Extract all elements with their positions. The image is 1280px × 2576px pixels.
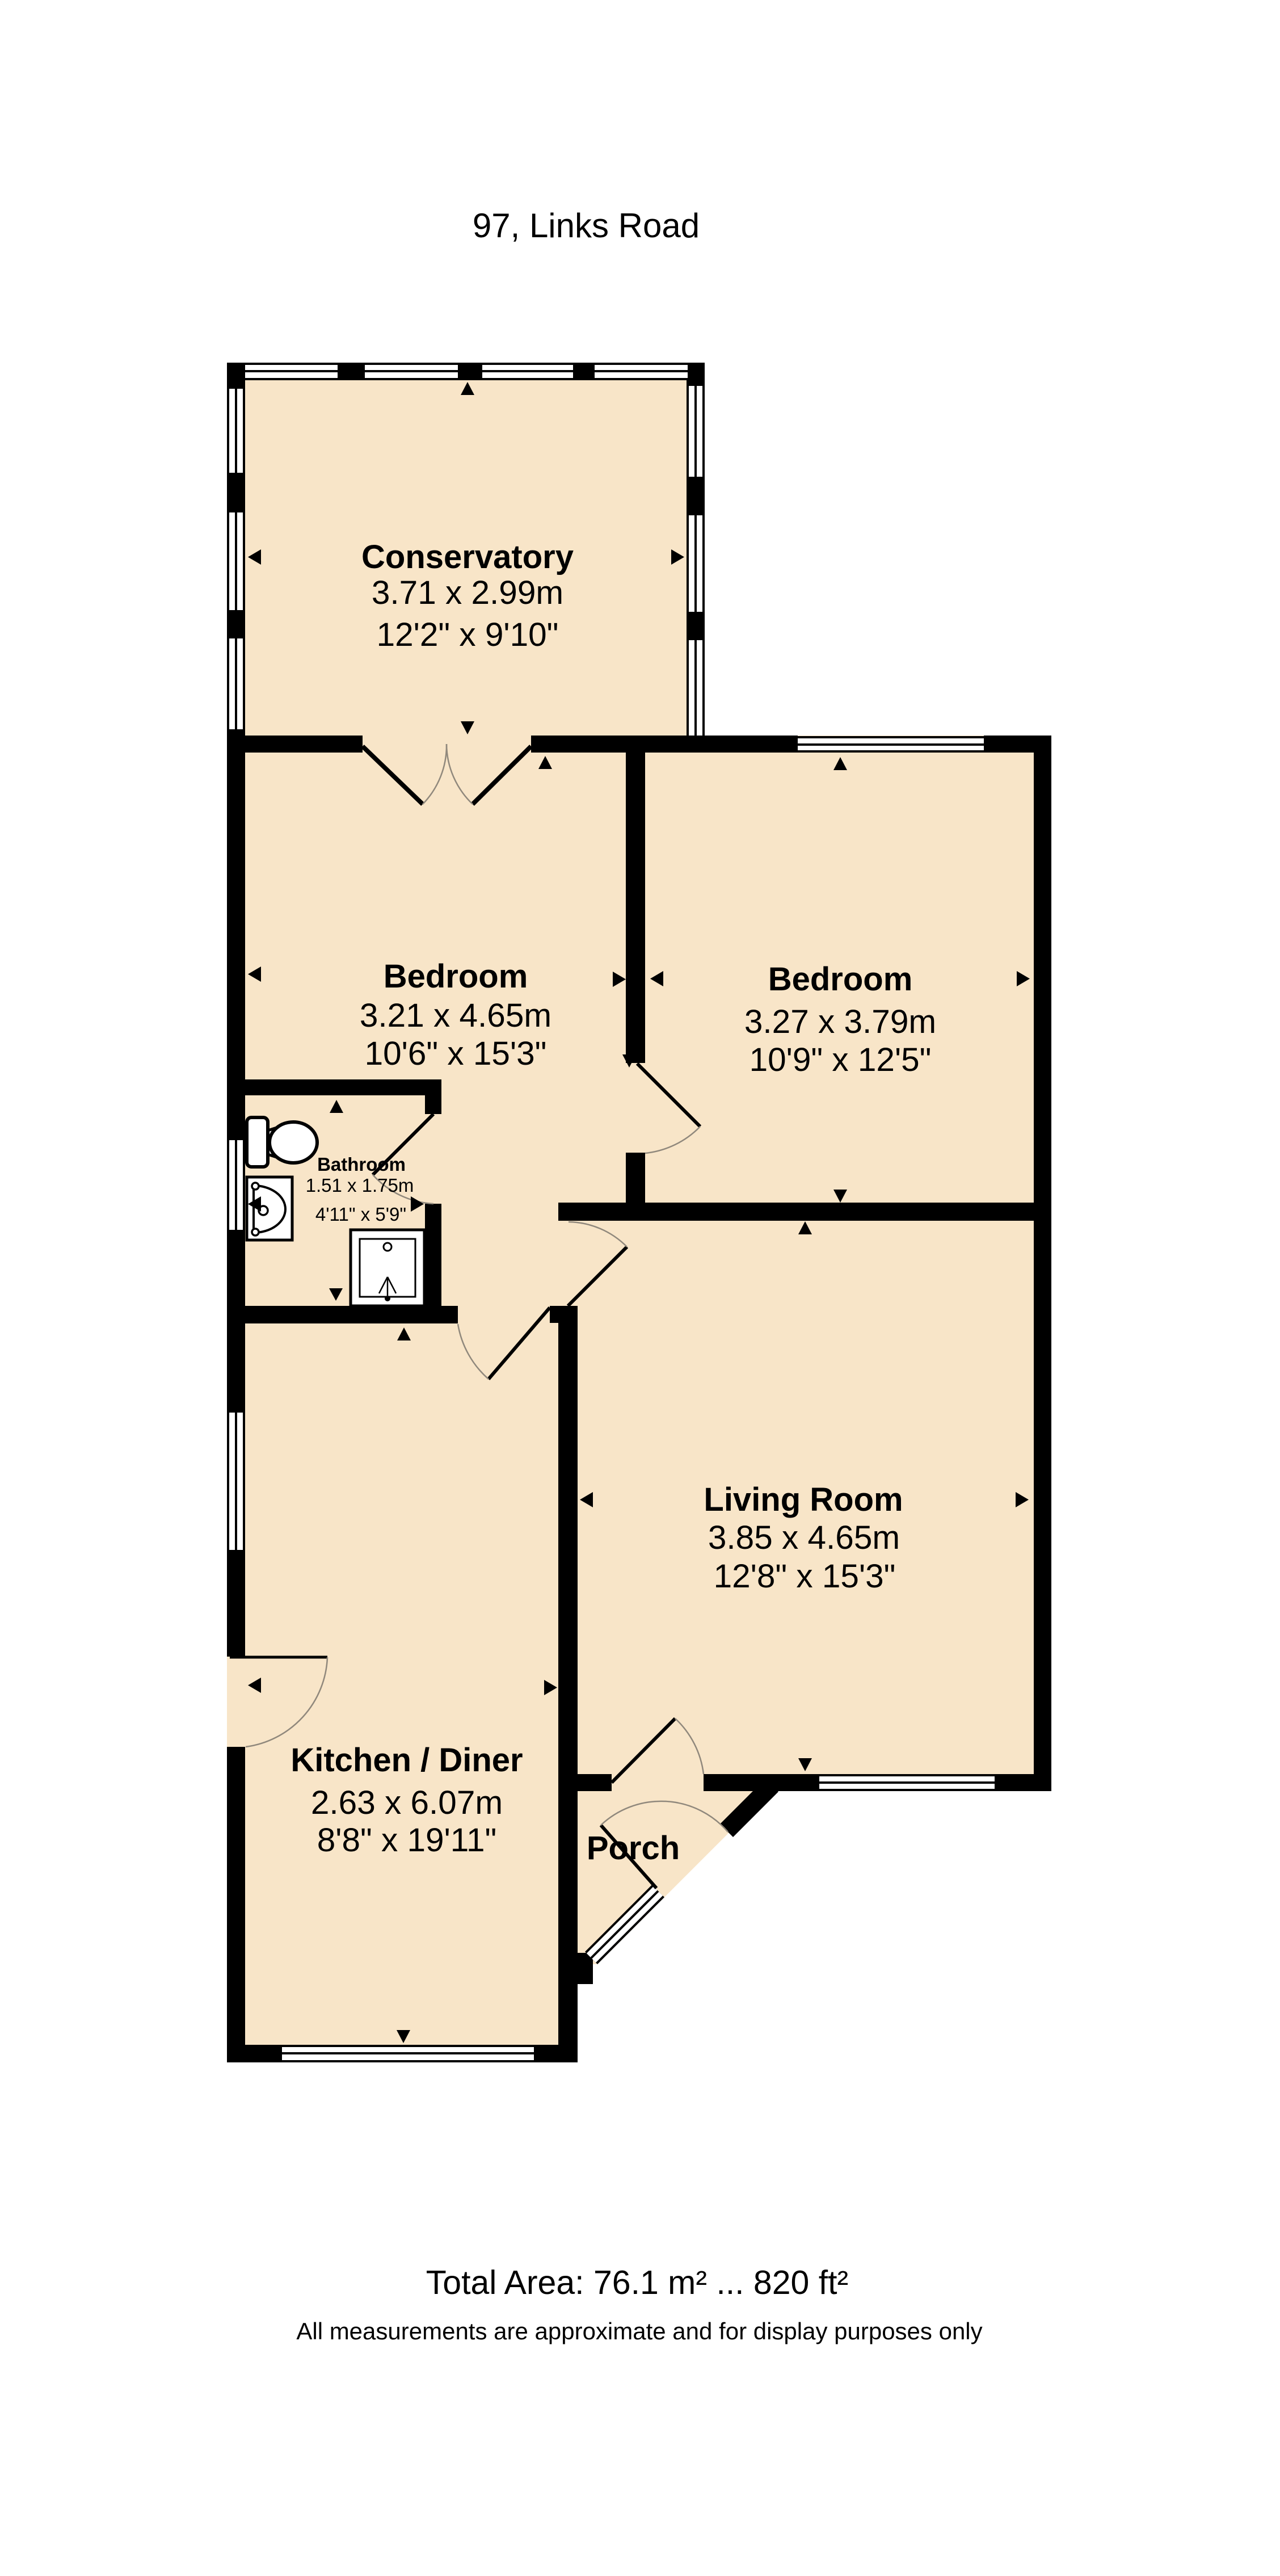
svg-text:3.85 x 4.65m: 3.85 x 4.65m	[708, 1519, 900, 1556]
svg-text:Total Area: 76.1 m² ... 820 ft: Total Area: 76.1 m² ... 820 ft²	[426, 2264, 848, 2301]
svg-text:Kitchen / Diner: Kitchen / Diner	[290, 1742, 523, 1779]
svg-text:Living Room: Living Room	[704, 1481, 903, 1518]
svg-text:10'9" x 12'5": 10'9" x 12'5"	[750, 1041, 932, 1078]
svg-text:10'6" x 15'3": 10'6" x 15'3"	[365, 1035, 547, 1072]
svg-text:3.27 x 3.79m: 3.27 x 3.79m	[744, 1003, 936, 1040]
svg-text:3.71 x 2.99m: 3.71 x 2.99m	[372, 574, 563, 611]
svg-text:All measurements are approxima: All measurements are approximate and for…	[296, 2318, 982, 2344]
svg-text:12'8" x 15'3": 12'8" x 15'3"	[714, 1558, 896, 1595]
svg-text:12'2" x 9'10": 12'2" x 9'10"	[377, 616, 559, 653]
svg-text:2.63 x 6.07m: 2.63 x 6.07m	[311, 1784, 503, 1821]
svg-text:Bedroom: Bedroom	[768, 961, 913, 998]
svg-text:Bedroom: Bedroom	[384, 958, 528, 995]
svg-text:Conservatory: Conservatory	[361, 539, 574, 575]
svg-text:4'11" x 5'9": 4'11" x 5'9"	[315, 1204, 406, 1225]
svg-text:Porch: Porch	[587, 1830, 680, 1867]
svg-text:1.51 x 1.75m: 1.51 x 1.75m	[306, 1175, 414, 1196]
svg-text:3.21 x 4.65m: 3.21 x 4.65m	[360, 997, 551, 1034]
svg-text:Bathroom: Bathroom	[317, 1154, 406, 1175]
svg-text:97, Links Road: 97, Links Road	[473, 207, 700, 245]
svg-text:8'8" x 19'11": 8'8" x 19'11"	[317, 1822, 497, 1859]
